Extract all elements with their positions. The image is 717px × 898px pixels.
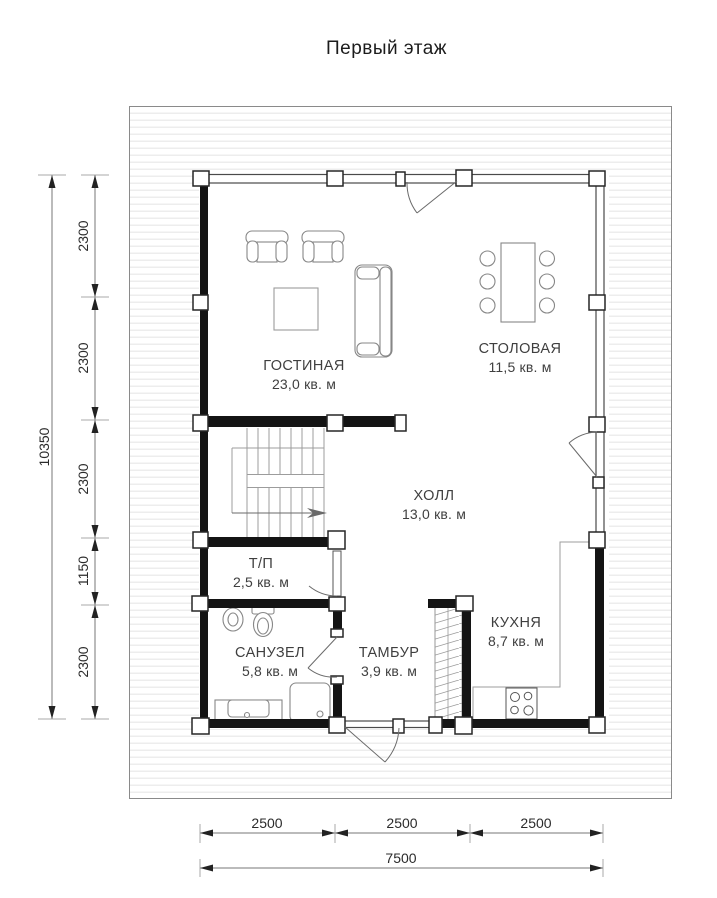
- dim-left-segment: 2300: [75, 632, 91, 692]
- kitchen-right-wall: [595, 540, 604, 726]
- room-name: ГОСТИНАЯ: [229, 357, 379, 375]
- bottom-wall-left: [203, 719, 343, 728]
- dining-chair: [480, 251, 495, 266]
- dim-bottom-segment: 2500: [237, 815, 297, 831]
- room-area: 8,7 кв. м: [441, 632, 591, 650]
- dim-left-segment: 2300: [75, 328, 91, 388]
- dining-chair: [480, 274, 495, 289]
- bidet: [223, 608, 243, 631]
- dining-chair: [540, 274, 555, 289]
- entry-threshold: [340, 721, 440, 728]
- room-label-kitchen: КУХНЯ 8,7 кв. м: [441, 614, 591, 650]
- toilet: [252, 604, 274, 637]
- coffee-table: [274, 288, 318, 330]
- floor-plan-drawing: [0, 0, 717, 898]
- stove: [506, 688, 537, 719]
- room-area: 3,9 кв. м: [314, 662, 464, 680]
- vanity-sink: [215, 700, 282, 722]
- dim-left-segment: 1150: [75, 541, 91, 601]
- room-name: ХОЛЛ: [359, 487, 509, 505]
- dim-left-segment: 2300: [75, 449, 91, 509]
- floor-plan-page: Первый этаж: [0, 0, 717, 898]
- room-label-hall: ХОЛЛ 13,0 кв. м: [359, 487, 509, 523]
- dim-bottom-segment: 2500: [372, 815, 432, 831]
- armchair: [302, 231, 344, 262]
- room-label-living: ГОСТИНАЯ 23,0 кв. м: [229, 357, 379, 393]
- dining-table: [501, 243, 535, 322]
- inner-wall-vertical: [333, 684, 342, 720]
- room-area: 23,0 кв. м: [229, 375, 379, 393]
- shower: [290, 683, 330, 722]
- room-area: 11,5 кв. м: [445, 358, 595, 376]
- room-name: СТОЛОВАЯ: [445, 340, 595, 358]
- room-name: КУХНЯ: [441, 614, 591, 632]
- utility-top-wall: [203, 537, 343, 547]
- room-label-utility: Т/П 2,5 кв. м: [186, 555, 336, 591]
- bathroom-top-wall: [203, 599, 343, 608]
- stair-wall: [203, 416, 400, 427]
- room-area: 2,5 кв. м: [186, 573, 336, 591]
- armchair: [246, 231, 288, 262]
- room-label-dining: СТОЛОВАЯ 11,5 кв. м: [445, 340, 595, 376]
- dim-left-segment: 2300: [75, 206, 91, 266]
- dim-left-total: 10350: [36, 407, 52, 487]
- dim-bottom-total: 7500: [371, 850, 431, 866]
- dining-set: [480, 243, 555, 322]
- dim-bottom-segment: 2500: [506, 815, 566, 831]
- dining-chair: [540, 298, 555, 313]
- room-area: 13,0 кв. м: [359, 505, 509, 523]
- dining-chair: [480, 298, 495, 313]
- sofa: [355, 265, 392, 357]
- room-name: Т/П: [186, 555, 336, 573]
- dining-chair: [540, 251, 555, 266]
- door-vestibule-entry: [345, 727, 399, 762]
